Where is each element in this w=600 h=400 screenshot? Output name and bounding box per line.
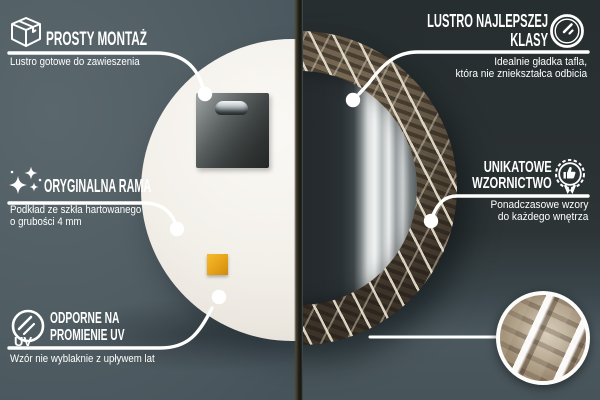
top-class-subtitle-line2: która nie zniekształca odbicia — [455, 69, 587, 81]
top-class-title: LUSTRO NAJLEPSZEJ KLASY — [427, 12, 548, 49]
package-box-icon — [8, 15, 44, 49]
easy-mounting-title: PROSTY MONTAŻ — [46, 30, 147, 49]
texture-magnifier — [496, 291, 590, 385]
easy-mounting-subtitle: Lustro gotowe do zawieszenia — [10, 57, 140, 69]
split-divider — [294, 0, 303, 400]
uv-resistant-title-line1: ODPORNE NA — [50, 311, 125, 328]
original-frame-subtitle: Podkład ze szkła hartowanego o grubości … — [10, 205, 141, 228]
uv-circle-icon: UV — [7, 307, 49, 349]
top-class-title-line2: KLASY — [427, 31, 548, 50]
unique-design-subtitle-line2: do każdego wnętrza — [490, 212, 588, 224]
uv-resistant-title: ODPORNE NA PROMIENIE UV — [50, 311, 125, 344]
original-frame-subtitle-line2: o grubości 4 mm — [10, 217, 141, 229]
mirror-product-infographic: PROSTY MONTAŻ Lustro gotowe do zawieszen… — [0, 0, 600, 400]
unique-design-title-line2: WZORNICTWO — [472, 176, 552, 192]
unique-design-title: UNIKATOWE WZORNICTWO — [472, 160, 552, 192]
unique-design-title-line1: UNIKATOWE — [472, 160, 552, 176]
hanger-plate — [196, 93, 269, 168]
adhesive-pad — [207, 254, 228, 275]
uv-resistant-title-line2: PROMIENIE UV — [50, 328, 125, 345]
uv-icon-label: UV — [14, 334, 32, 349]
original-frame-title: ORYGINALNA RAMA — [44, 177, 151, 195]
mirror-shine-icon — [548, 12, 586, 50]
original-frame-subtitle-line1: Podkład ze szkła hartowanego — [10, 205, 141, 217]
top-class-subtitle-line1: Idealnie gładka tafla, — [455, 57, 587, 69]
unique-design-subtitle: Ponadczasowe wzory do każdego wnętrza — [490, 200, 588, 223]
top-class-title-line1: LUSTRO NAJLEPSZEJ — [427, 12, 548, 31]
top-class-subtitle: Idealnie gładka tafla, która nie znieksz… — [455, 57, 587, 80]
award-badge-icon — [551, 157, 589, 201]
uv-resistant-subtitle: Wzór nie wyblaknie z upływem lat — [10, 354, 155, 366]
sparkles-icon — [7, 164, 43, 200]
hanger-hook — [215, 101, 248, 115]
unique-design-subtitle-line1: Ponadczasowe wzory — [490, 200, 588, 212]
